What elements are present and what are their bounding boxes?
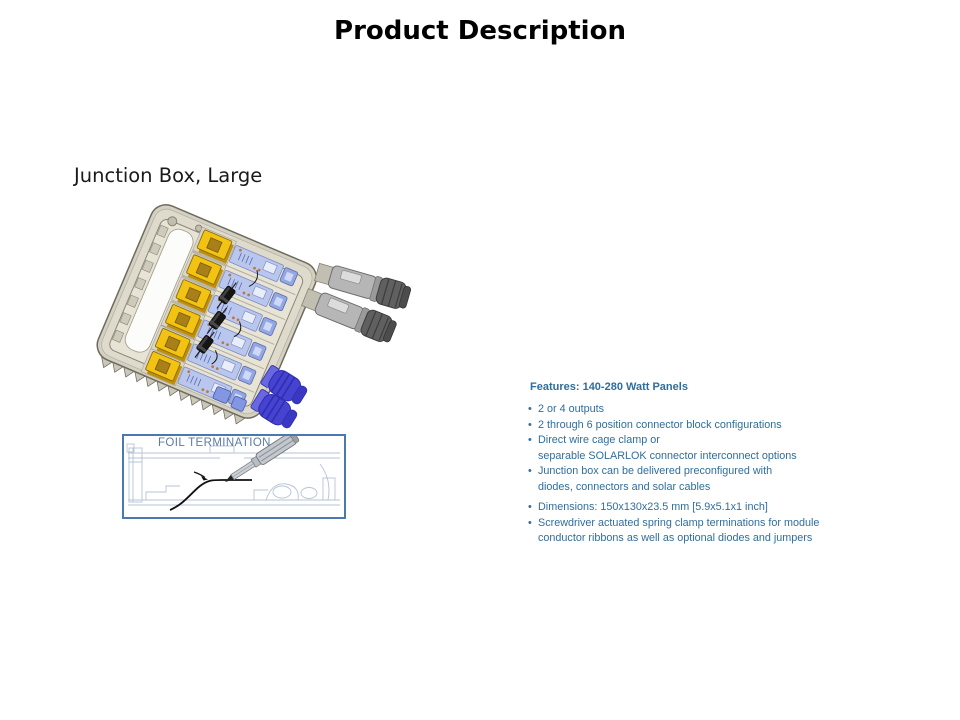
- feature-text: Junction box can be delivered preconfigu…: [538, 465, 772, 477]
- feature-text: 2 or 4 outputs: [538, 403, 604, 415]
- bullet-marker: •: [528, 433, 538, 464]
- feature-item: • Direct wire cage clamp orseparable SOL…: [528, 433, 838, 464]
- bullet-marker: •: [528, 418, 538, 434]
- feature-item: • 2 through 6 position connector block c…: [528, 418, 838, 434]
- foil-termination-label: FOIL TERMINATION: [158, 437, 271, 449]
- feature-text: Direct wire cage clamp or: [538, 434, 660, 446]
- product-subtitle: Junction Box, Large: [74, 164, 262, 187]
- foil-ribbon: [170, 480, 252, 510]
- product-description-slide: Product Description Junction Box, Large: [0, 0, 960, 720]
- foil-termination-figure: FOIL TERMINATION: [122, 434, 346, 519]
- feature-item: • Screwdriver actuated spring clamp term…: [528, 516, 838, 547]
- junction-box-figure: [70, 194, 415, 439]
- feature-text: separable SOLARLOK connector interconnec…: [538, 449, 838, 465]
- feature-item: • Junction box can be delivered preconfi…: [528, 464, 838, 495]
- feature-item: • 2 or 4 outputs: [528, 402, 838, 418]
- bullet-marker: •: [528, 500, 538, 516]
- features-heading: Features: 140-280 Watt Panels: [530, 381, 838, 394]
- feature-text: Dimensions: 150x130x23.5 mm [5.9x5.1x1 i…: [538, 501, 768, 513]
- pointer-arrow: [194, 472, 205, 478]
- feature-text: 2 through 6 position connector block con…: [538, 419, 782, 431]
- feature-text: conductor ribbons as well as optional di…: [538, 531, 838, 547]
- bullet-marker: •: [528, 516, 538, 547]
- page-title: Product Description: [0, 16, 960, 46]
- bullet-marker: •: [528, 402, 538, 418]
- feature-item: • Dimensions: 150x130x23.5 mm [5.9x5.1x1…: [528, 500, 838, 516]
- bullet-marker: •: [528, 464, 538, 495]
- feature-text: Screwdriver actuated spring clamp termin…: [538, 517, 819, 529]
- features-list: Features: 140-280 Watt Panels • 2 or 4 o…: [528, 381, 838, 547]
- feature-text: diodes, connectors and solar cables: [538, 480, 838, 496]
